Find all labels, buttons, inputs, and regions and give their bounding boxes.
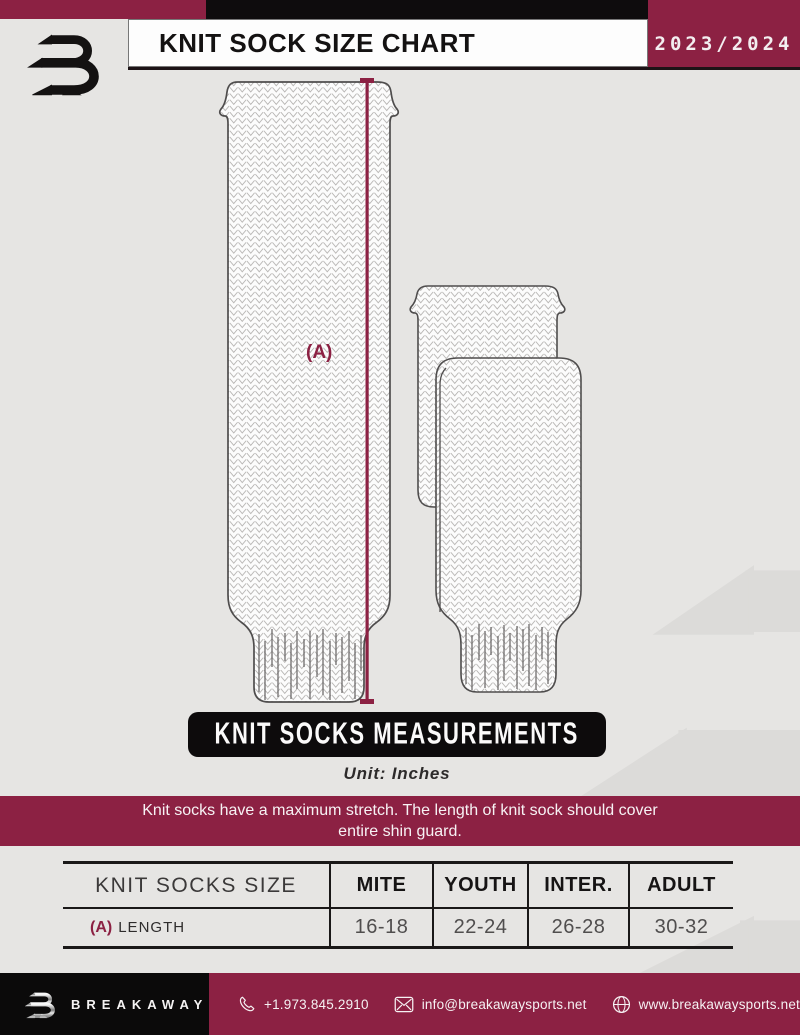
phone-icon (237, 995, 256, 1014)
header-underline (128, 67, 800, 70)
stretch-note-line2: entire shin guard. (338, 822, 462, 842)
size-table-header-row: KNIT SOCKS SIZE MITE YOUTH INTER. ADULT (63, 864, 733, 909)
season-text: 2023/2024 (655, 34, 794, 54)
column-header-youth: YOUTH (432, 864, 527, 907)
top-maroon-strip (0, 0, 206, 19)
size-table: KNIT SOCKS SIZE MITE YOUTH INTER. ADULT … (63, 861, 733, 949)
top-black-strip (206, 0, 648, 19)
sock-youth-illustration (410, 286, 565, 507)
measurements-banner: KNIT SOCKS MEASUREMENTS (188, 712, 606, 757)
column-header-inter: INTER. (527, 864, 628, 907)
breakaway-watermark-logo (572, 478, 800, 1035)
globe-icon (612, 995, 631, 1014)
length-row: (A) LENGTH 16-18 22-24 26-28 30-32 (63, 909, 733, 946)
phone-contact: +1.973.845.2910 (237, 995, 369, 1014)
website-url: www.breakawaysports.net (639, 997, 800, 1012)
footer-contacts: +1.973.845.2910 info@breakawaysports.net (209, 973, 800, 1035)
sock-adult-illustration (220, 82, 398, 702)
size-table-title-cell: KNIT SOCKS SIZE (63, 864, 329, 907)
page-title: KNIT SOCK SIZE CHART (159, 28, 475, 59)
column-header-adult: ADULT (628, 864, 733, 907)
stretch-note-band: Knit socks have a maximum stretch. The l… (0, 796, 800, 846)
length-measure-line (360, 78, 374, 704)
measure-label-a: (A) (306, 342, 332, 364)
stretch-note-line1: Knit socks have a maximum stretch. The l… (142, 801, 658, 821)
email-address: info@breakawaysports.net (422, 997, 587, 1012)
footer-brand: BREAKAWAY (0, 973, 209, 1035)
sock-intermediate-illustration (436, 358, 581, 692)
breakaway-logo-silver-icon (24, 985, 58, 1023)
email-contact: info@breakawaysports.net (394, 996, 587, 1013)
brand-name: BREAKAWAY (71, 997, 208, 1012)
website-contact: www.breakawaysports.net (612, 995, 800, 1014)
length-row-label: (A) LENGTH (63, 909, 329, 946)
sock-ribbing (259, 629, 361, 700)
measurements-banner-text: KNIT SOCKS MEASUREMENTS (215, 717, 579, 751)
breakaway-logo-icon (24, 22, 108, 102)
sock-ribbing (466, 624, 548, 690)
column-header-mite: MITE (329, 864, 432, 907)
phone-number: +1.973.845.2910 (264, 997, 369, 1012)
title-bar: KNIT SOCK SIZE CHART (128, 19, 648, 67)
length-value-youth: 22-24 (432, 909, 527, 946)
length-value-inter: 26-28 (527, 909, 628, 946)
season-block: 2023/2024 (648, 0, 800, 67)
envelope-icon (394, 996, 414, 1013)
footer: BREAKAWAY +1.973.845.2910 info@bre (0, 973, 800, 1035)
knit-sock-size-chart-page: (A) 2023/2024 KNIT SOCK SIZE CHART KNIT … (0, 0, 800, 1035)
length-value-adult: 30-32 (628, 909, 733, 946)
unit-note: Unit: Inches (188, 764, 606, 784)
length-value-mite: 16-18 (329, 909, 432, 946)
